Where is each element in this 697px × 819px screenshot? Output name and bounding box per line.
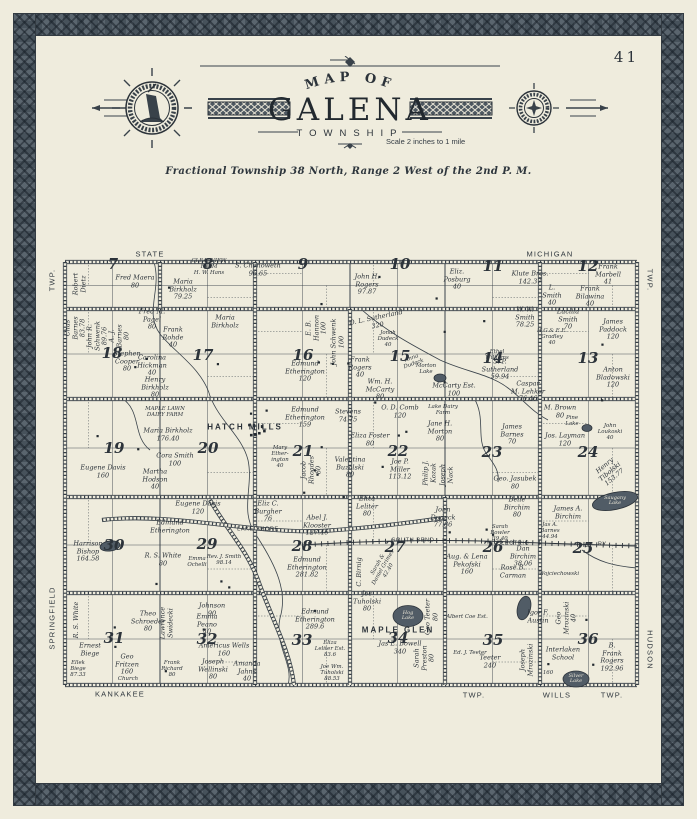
- road-label: TWP.: [645, 269, 654, 292]
- owner-label: Edmund Etherington 281.82: [287, 557, 327, 580]
- owner-label: Maria Birkholz: [211, 314, 239, 329]
- section-number-29: 29: [197, 536, 218, 554]
- owner-label: CLEARVIEW FARM H. W. Hans: [192, 259, 227, 277]
- owner-label: Americus Wells 160: [199, 642, 250, 657]
- owner-label: James A. Birchim: [554, 505, 583, 520]
- owner-label: Maria Birkholz 79.25: [169, 279, 197, 302]
- banner-arc-title: MAP OF: [303, 70, 397, 93]
- owner-label: Rev. J. Smith 98.14: [207, 555, 241, 567]
- owner-label: John Loukoski 40: [595, 424, 625, 442]
- owner-label: O. D. Comb 120: [381, 404, 418, 419]
- road-label: KANKAKEE: [95, 691, 145, 700]
- section-number-33: 33: [292, 632, 313, 650]
- owner-label: Eliza Leliter 80: [356, 496, 378, 519]
- owner-label: Rose B. Carman: [500, 564, 526, 579]
- owner-label: Joseph Nack: [439, 464, 454, 486]
- township-map: 7891011121817161514131920212223243029282…: [62, 250, 640, 702]
- border-left: [13, 13, 36, 806]
- owner-label: E. B. Hannon 100: [306, 315, 329, 341]
- owner-label: Jas A. Barnes 44.94: [540, 523, 559, 541]
- svg-text:MAP OF: MAP OF: [303, 70, 397, 93]
- owner-label: Eliza Foster 80: [350, 432, 389, 447]
- owner-label: Edmund Etherington 159: [285, 407, 325, 430]
- owner-label: Maria Birkholz 176.40: [143, 427, 192, 442]
- owner-label: Carolina Hickman 40: [137, 355, 167, 378]
- road-label: WILLS: [543, 692, 572, 701]
- owner-label: Amanda Jahns 40: [234, 661, 261, 684]
- owner-label: Fred Maera 80: [115, 274, 154, 289]
- owner-label: Eugene Davis 160: [80, 464, 125, 479]
- owner-label: John Dudeck 77.86: [431, 507, 456, 530]
- owner-label: R. S. White: [73, 602, 81, 639]
- owner-label: Frank Richard 80: [161, 661, 183, 679]
- township-title: GALENA: [268, 92, 432, 128]
- owner-label: Joe Wm. Tuholski 88.53: [320, 665, 343, 683]
- owner-label: Abel J. Klooster 127.46: [303, 515, 331, 538]
- owner-label: Pine Lake: [565, 416, 578, 428]
- page-number: 41: [614, 48, 639, 66]
- owner-label: S. P. Sutherland 59.94: [482, 359, 519, 382]
- owner-label: B. Frank Rogers 192.96: [598, 643, 626, 674]
- title-banner: MAP OF GALENA TOWNSHIP: [90, 56, 610, 160]
- owner-label: Church: [118, 677, 138, 683]
- atlas-page: 41: [0, 0, 697, 819]
- railroad-label: SOUTH BEND: [392, 538, 435, 545]
- owner-label: James Barnes 70: [500, 424, 523, 447]
- owner-label: Harrison Bishop 164.58: [73, 541, 102, 564]
- road-label: TWP.: [49, 269, 58, 292]
- owner-label: Jonah Dudeck 40: [378, 331, 399, 349]
- scale-note: Scale 2 inches to 1 mile: [386, 137, 465, 146]
- section-number-10: 10: [390, 256, 411, 274]
- owner-label: Morton Lake: [416, 364, 436, 376]
- owner-label: Frank Marbell 41: [595, 264, 621, 287]
- section-number-7: 7: [108, 256, 118, 274]
- owner-label: R. S. White 80: [145, 552, 182, 567]
- owner-label: Eliz. Posburg 40: [444, 269, 471, 292]
- owner-label: Joe P. Miller 113.12: [389, 459, 412, 482]
- owner-label: Ernest Biege: [79, 642, 101, 657]
- owner-label: W. W. Smith 78.25: [515, 307, 535, 330]
- section-number-23: 23: [482, 444, 503, 462]
- owner-label: Teeter 240: [479, 654, 500, 669]
- owner-label: Edmund Etherington: [150, 519, 190, 534]
- railroad-label: RY.: [598, 542, 608, 549]
- owner-label: MAPLE LAWN DAIRY FARM: [145, 407, 185, 419]
- owner-label: Lake Dairy Farm: [428, 405, 458, 417]
- owner-label: Lawrence Swidecki: [159, 607, 174, 639]
- road-label: SPRINGFIELD: [49, 586, 58, 649]
- border-right: [661, 13, 684, 806]
- owner-label: L. Smith 40: [542, 285, 562, 308]
- owner-label: Geo. Jasubek 80: [494, 475, 537, 490]
- road-label: STATE: [135, 251, 164, 260]
- owner-label: Martha Hodson 40: [142, 469, 167, 492]
- legal-description: Fractional Township 38 North, Range 2 We…: [0, 166, 697, 177]
- section-number-17: 17: [193, 347, 214, 365]
- owner-label: Joe Tuholski 80: [353, 591, 381, 614]
- section-number-20: 20: [198, 440, 219, 458]
- owner-label: Geo Teeter 80: [424, 599, 439, 635]
- owner-label: Jos. Layman 120: [545, 432, 585, 447]
- owner-label: Wm. H. McCarty 80: [366, 379, 395, 402]
- owner-label: Sarah Preston 80: [414, 645, 437, 670]
- road-label: HUDSON: [645, 630, 654, 670]
- section-number-31: 31: [104, 630, 125, 648]
- section-number-11: 11: [483, 258, 504, 276]
- section-number-35: 35: [483, 632, 504, 650]
- owner-label: H.G.& E.E. Gradley 40: [537, 329, 567, 347]
- owner-label: Wojciechowski: [539, 572, 579, 578]
- owner-label: John Schwenk 100: [330, 319, 345, 366]
- owner-label: Frank Rohde 40: [162, 327, 183, 350]
- owner-label: Albert Coe Est.: [446, 615, 488, 621]
- owner-label: Eliz C. Burgher 76: [254, 501, 281, 524]
- owner-label: Philip J. Kozak: [422, 460, 437, 485]
- compass-medallion-icon: [509, 83, 559, 133]
- owner-label: Fred M. Pagel 80: [139, 309, 165, 332]
- owner-label: Ellek Biege 87.33: [70, 661, 86, 679]
- owner-label: Igor F. Austin: [527, 609, 548, 624]
- owner-label: Stevens 74.75: [335, 408, 361, 423]
- owner-label: Mary Ether- ington 40: [271, 446, 289, 470]
- owner-label: Geo Fritzen 160: [115, 654, 139, 677]
- road-label: TWP.: [601, 692, 624, 701]
- road-label: TWP.: [463, 692, 486, 701]
- owner-label: Anton Bladowski 120: [596, 367, 630, 390]
- section-number-9: 9: [298, 256, 308, 274]
- owner-label: Aug. & Lena Pekofski 160: [446, 554, 487, 577]
- owner-label: Edmund Etherington 120: [285, 361, 325, 384]
- owner-label: Valentina Buzolski 80: [335, 457, 366, 480]
- owner-label: Interlaken School: [546, 646, 580, 661]
- owner-label: Joseph Wellinski 80: [198, 659, 228, 682]
- border-top: [13, 13, 684, 36]
- lake-label: Saugany Lake: [604, 496, 626, 507]
- lake-label: Silver Lake: [569, 674, 584, 685]
- owner-label: Jacob Rhoades 80: [301, 456, 324, 484]
- owner-label: C. Birnig: [356, 557, 364, 586]
- owner-label: Eugene Davis 120: [175, 500, 220, 515]
- owner-label: John R. Schwenk 89.76: [87, 321, 110, 351]
- banner-ornament: MAP OF GALENA TOWNSHIP: [90, 56, 610, 160]
- owner-label: Caspar M. Lehker 76.46: [511, 381, 545, 404]
- owner-label: John H. Rogers 97.87: [355, 274, 380, 297]
- owner-label: James Paddock 120: [599, 319, 627, 342]
- section-number-25: 25: [573, 540, 594, 558]
- section-number-36: 36: [578, 631, 599, 649]
- owner-label: Emma Peano 40: [197, 614, 218, 637]
- owner-label: Henry Birkholz 80: [141, 377, 169, 400]
- section-number-19: 19: [104, 440, 125, 458]
- owner-label: Frank Rogers 40: [348, 357, 371, 380]
- owner-label: Edmund Etherington 289.6: [295, 609, 335, 632]
- owner-label: Frank Bilawina 40: [576, 286, 605, 309]
- owner-label: Jane H. Morton 80: [428, 421, 452, 444]
- section-number-30: 30: [104, 537, 125, 555]
- owner-label: Chas Barnes 83.78: [65, 316, 88, 339]
- owner-label: Joseph Mrozinski: [519, 644, 534, 677]
- owner-label: Cora Smith 100: [156, 452, 193, 467]
- owner-label: Geo Mrozinski 40: [556, 602, 579, 635]
- owner-label: Sarah Bowler 39.40: [490, 525, 509, 543]
- owner-label: Robert Dietz: [72, 273, 87, 296]
- section-number-28: 28: [292, 538, 313, 556]
- owner-label: Belle Birchim 80: [504, 497, 530, 520]
- owner-label: Klute Bros. 142.37: [512, 270, 549, 285]
- owner-label: A. J. Barnes 80: [109, 324, 132, 347]
- section-number-13: 13: [578, 350, 599, 368]
- owner-label: 160: [543, 671, 553, 677]
- lake-label: Hog Lake: [402, 611, 414, 622]
- road-label: MICHIGAN: [526, 251, 573, 260]
- owner-label: S. Chenoweth 96.65: [235, 262, 281, 277]
- owner-label: McCarty Est. 100: [432, 382, 475, 397]
- owner-label: Emma Ochelli: [187, 557, 206, 569]
- place-label: HATCH MILLS: [207, 422, 283, 431]
- railroad-label: LAKE SHORE: [237, 527, 279, 534]
- owner-label: Eliza Leliter Est. 83.6: [315, 641, 345, 659]
- border-bottom: [13, 783, 684, 806]
